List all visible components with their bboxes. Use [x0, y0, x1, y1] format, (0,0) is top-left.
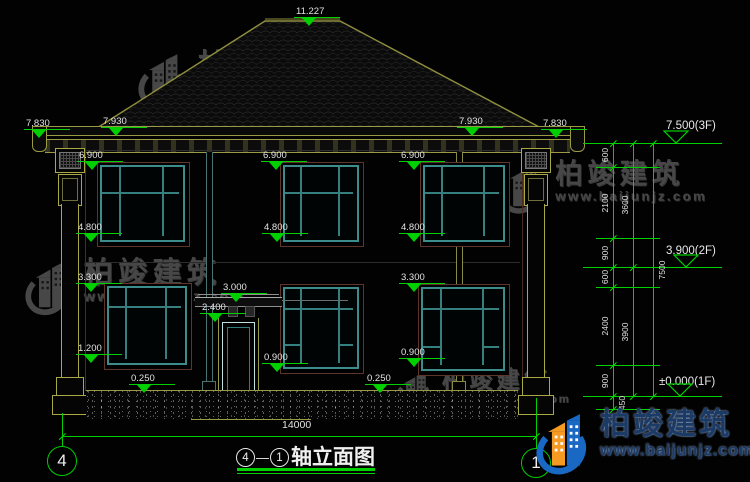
window-1f-middle-sub-rail-right [338, 344, 353, 346]
level-marker-line [399, 283, 445, 284]
window-1f-right-sub-rail-right [482, 346, 499, 348]
level-marker-arrow-icon [85, 162, 99, 170]
title-dash: — [256, 450, 269, 465]
level-marker-arrow-icon [407, 284, 421, 292]
level-marker-arrow-icon [137, 385, 151, 393]
dim-chain-value-0-5: 900 [600, 373, 610, 387]
canopy-bracket-right [245, 306, 255, 317]
drawing-title: 4 — 1 轴立面图 [236, 441, 375, 471]
watermark-brand-url: www.baijunjz.com [555, 189, 707, 204]
window-1f-middle-sub-rail-left [285, 344, 300, 346]
level-marker-line [221, 293, 267, 294]
level-marker-arrow-icon [32, 130, 46, 138]
level-marker-label: 1.200 [78, 343, 102, 354]
window-2f-right [423, 165, 505, 242]
axis-extension-left [62, 413, 63, 446]
level-marker-arrow-icon [465, 128, 479, 136]
window-2f-left-mullion-right [162, 167, 164, 236]
level-marker-label: 7.930 [459, 116, 483, 127]
title-axis-end-bubble: 1 [270, 448, 289, 467]
level-marker-arrow-icon [269, 162, 283, 170]
window-2f-middle-mullion-right [338, 167, 340, 236]
level-marker-line [262, 233, 308, 234]
dim-chain-value-1-0: 3600 [620, 196, 630, 215]
canopy-belt-line [282, 300, 348, 301]
level-marker-label: 3.300 [401, 272, 425, 283]
level-marker-arrow-icon [270, 364, 284, 372]
level-marker-line [24, 129, 70, 130]
level-marker-label: 6.900 [401, 150, 425, 161]
level-marker-label: 0.900 [401, 347, 425, 358]
title-text: 轴立面图 [291, 441, 375, 471]
dim-chain-value-0-1: 2100 [600, 193, 610, 212]
extension-line-1 [596, 238, 660, 239]
window-1f-right-mullion-right [482, 289, 484, 365]
level-marker-arrow-icon [407, 359, 421, 367]
column-panel-inner-right [528, 178, 544, 201]
column-panel-inner-left [62, 178, 78, 201]
level-marker-arrow-icon [84, 355, 98, 363]
extension-line-2 [596, 287, 660, 288]
dim-chain-value-0-2: 900 [600, 245, 610, 259]
overall-width-dimension: 14000 [282, 419, 311, 431]
level-marker-line [76, 233, 122, 234]
level-marker-arrow-icon [84, 234, 98, 242]
level-marker-arrow-icon [109, 128, 123, 136]
company-logo-icon [536, 408, 594, 480]
level-marker-line [399, 161, 445, 162]
dim-chain-value-2-0: 7500 [657, 260, 667, 279]
column-capital-hatch-right [525, 152, 547, 169]
level-marker-line [399, 358, 445, 359]
level-marker-label: 4.800 [401, 222, 425, 233]
level-marker-arrow-icon [84, 284, 98, 292]
dim-chain-line-1 [633, 143, 634, 396]
company-name: 柏竣建筑 [600, 408, 750, 441]
column-plinth-left [52, 395, 88, 415]
level-marker-label: 2.400 [202, 302, 226, 313]
watermark-brand-name: 柏竣建筑 [555, 160, 707, 189]
level-marker-arrow-icon [407, 234, 421, 242]
floor-level-triangle-icon [663, 130, 689, 144]
level-marker-label: 0.250 [131, 373, 155, 384]
window-2f-left [100, 165, 185, 242]
column-shaft-left [61, 204, 79, 377]
level-marker-label: 7.830 [543, 118, 567, 129]
level-marker-line [541, 129, 587, 130]
extension-line-3 [596, 365, 660, 366]
drainpipe-left [206, 152, 213, 390]
level-marker-line [399, 233, 445, 234]
window-2f-left-mullion-left [119, 167, 121, 236]
ground-hatch-strip [86, 390, 518, 419]
company-url: www.baijunjz.com [600, 442, 750, 460]
level-marker-arrow-icon [549, 130, 563, 138]
window-2f-middle-mullion-left [300, 167, 302, 236]
roof-tile-hatch [0, 19, 750, 129]
level-marker-label: 4.800 [264, 222, 288, 233]
dim-chain-line-2 [653, 143, 654, 396]
level-marker-arrow-icon [208, 314, 222, 322]
level-marker-arrow-icon [302, 18, 316, 26]
second-floor-line [86, 262, 520, 263]
level-marker-arrow-icon [407, 162, 421, 170]
level-marker-line [101, 127, 147, 128]
window-1f-right-sub-rail-left [423, 346, 440, 348]
entry-door-panel [227, 327, 250, 394]
level-marker-label: 7.830 [26, 118, 50, 129]
dim-chain-value-0-4: 2400 [600, 317, 610, 336]
level-marker-label: 6.900 [79, 150, 103, 161]
level-marker-label: 4.800 [78, 222, 102, 233]
elevation-drawing-canvas: 柏竣建筑www.baijunjz.com柏竣建筑www.baijunjz.com… [0, 0, 750, 482]
level-marker-line [294, 17, 340, 18]
title-underline-thin [237, 473, 375, 474]
level-marker-label: 3.000 [223, 282, 247, 293]
level-marker-line [76, 354, 122, 355]
level-marker-line [262, 363, 308, 364]
window-1f-right-transom [423, 308, 499, 310]
level-marker-line [76, 283, 122, 284]
floor-level-triangle-icon [667, 383, 693, 397]
canopy-bracket-left [228, 306, 238, 317]
window-2f-middle [283, 165, 359, 242]
company-logo: 柏竣建筑 www.baijunjz.com [536, 408, 750, 480]
column-base-left [56, 377, 84, 397]
level-marker-line [365, 384, 411, 385]
window-2f-right-mullion-left [441, 167, 443, 236]
title-axis-start-bubble: 4 [236, 448, 255, 467]
dim-chain-value-0-0: 600 [600, 148, 610, 162]
window-1f-right-mullion-left [440, 289, 442, 365]
level-marker-label: 6.900 [263, 150, 287, 161]
level-marker-arrow-icon [270, 234, 284, 242]
level-marker-label: 3.300 [78, 272, 102, 283]
level-marker-arrow-icon [373, 385, 387, 393]
level-marker-label: 0.900 [264, 352, 288, 363]
window-1f-left-mullion-right [165, 288, 167, 359]
window-2f-middle-transom [285, 192, 353, 194]
window-2f-left-transom [102, 192, 179, 194]
level-marker-line [77, 161, 123, 162]
window-1f-middle-transom [285, 308, 353, 310]
level-marker-line [457, 127, 503, 128]
dim-chain-line-0 [613, 143, 614, 409]
level-marker-line [200, 313, 246, 314]
window-2f-right-transom [425, 192, 499, 194]
column-base-right [522, 377, 550, 397]
dim-chain-value-1-1: 3900 [620, 322, 630, 341]
window-2f-right-mullion-right [483, 167, 485, 236]
window-1f-left-mullion-left [125, 288, 127, 359]
level-marker-label: 7.930 [103, 116, 127, 127]
level-marker-line [261, 161, 307, 162]
level-marker-arrow-icon [229, 294, 243, 302]
floor-level-triangle-icon [673, 254, 699, 268]
window-1f-left-transom [109, 306, 181, 308]
dim-chain-value-0-3: 600 [600, 270, 610, 284]
axis-bubble-4: 4 [47, 446, 77, 476]
extension-line-0 [596, 167, 660, 168]
overall-dim-line [62, 436, 536, 437]
level-marker-line [129, 384, 175, 385]
level-marker-label: 11.227 [296, 6, 324, 17]
column-shaft-right [527, 204, 545, 377]
level-marker-label: 0.250 [367, 373, 391, 384]
title-underline-thick [237, 468, 375, 471]
